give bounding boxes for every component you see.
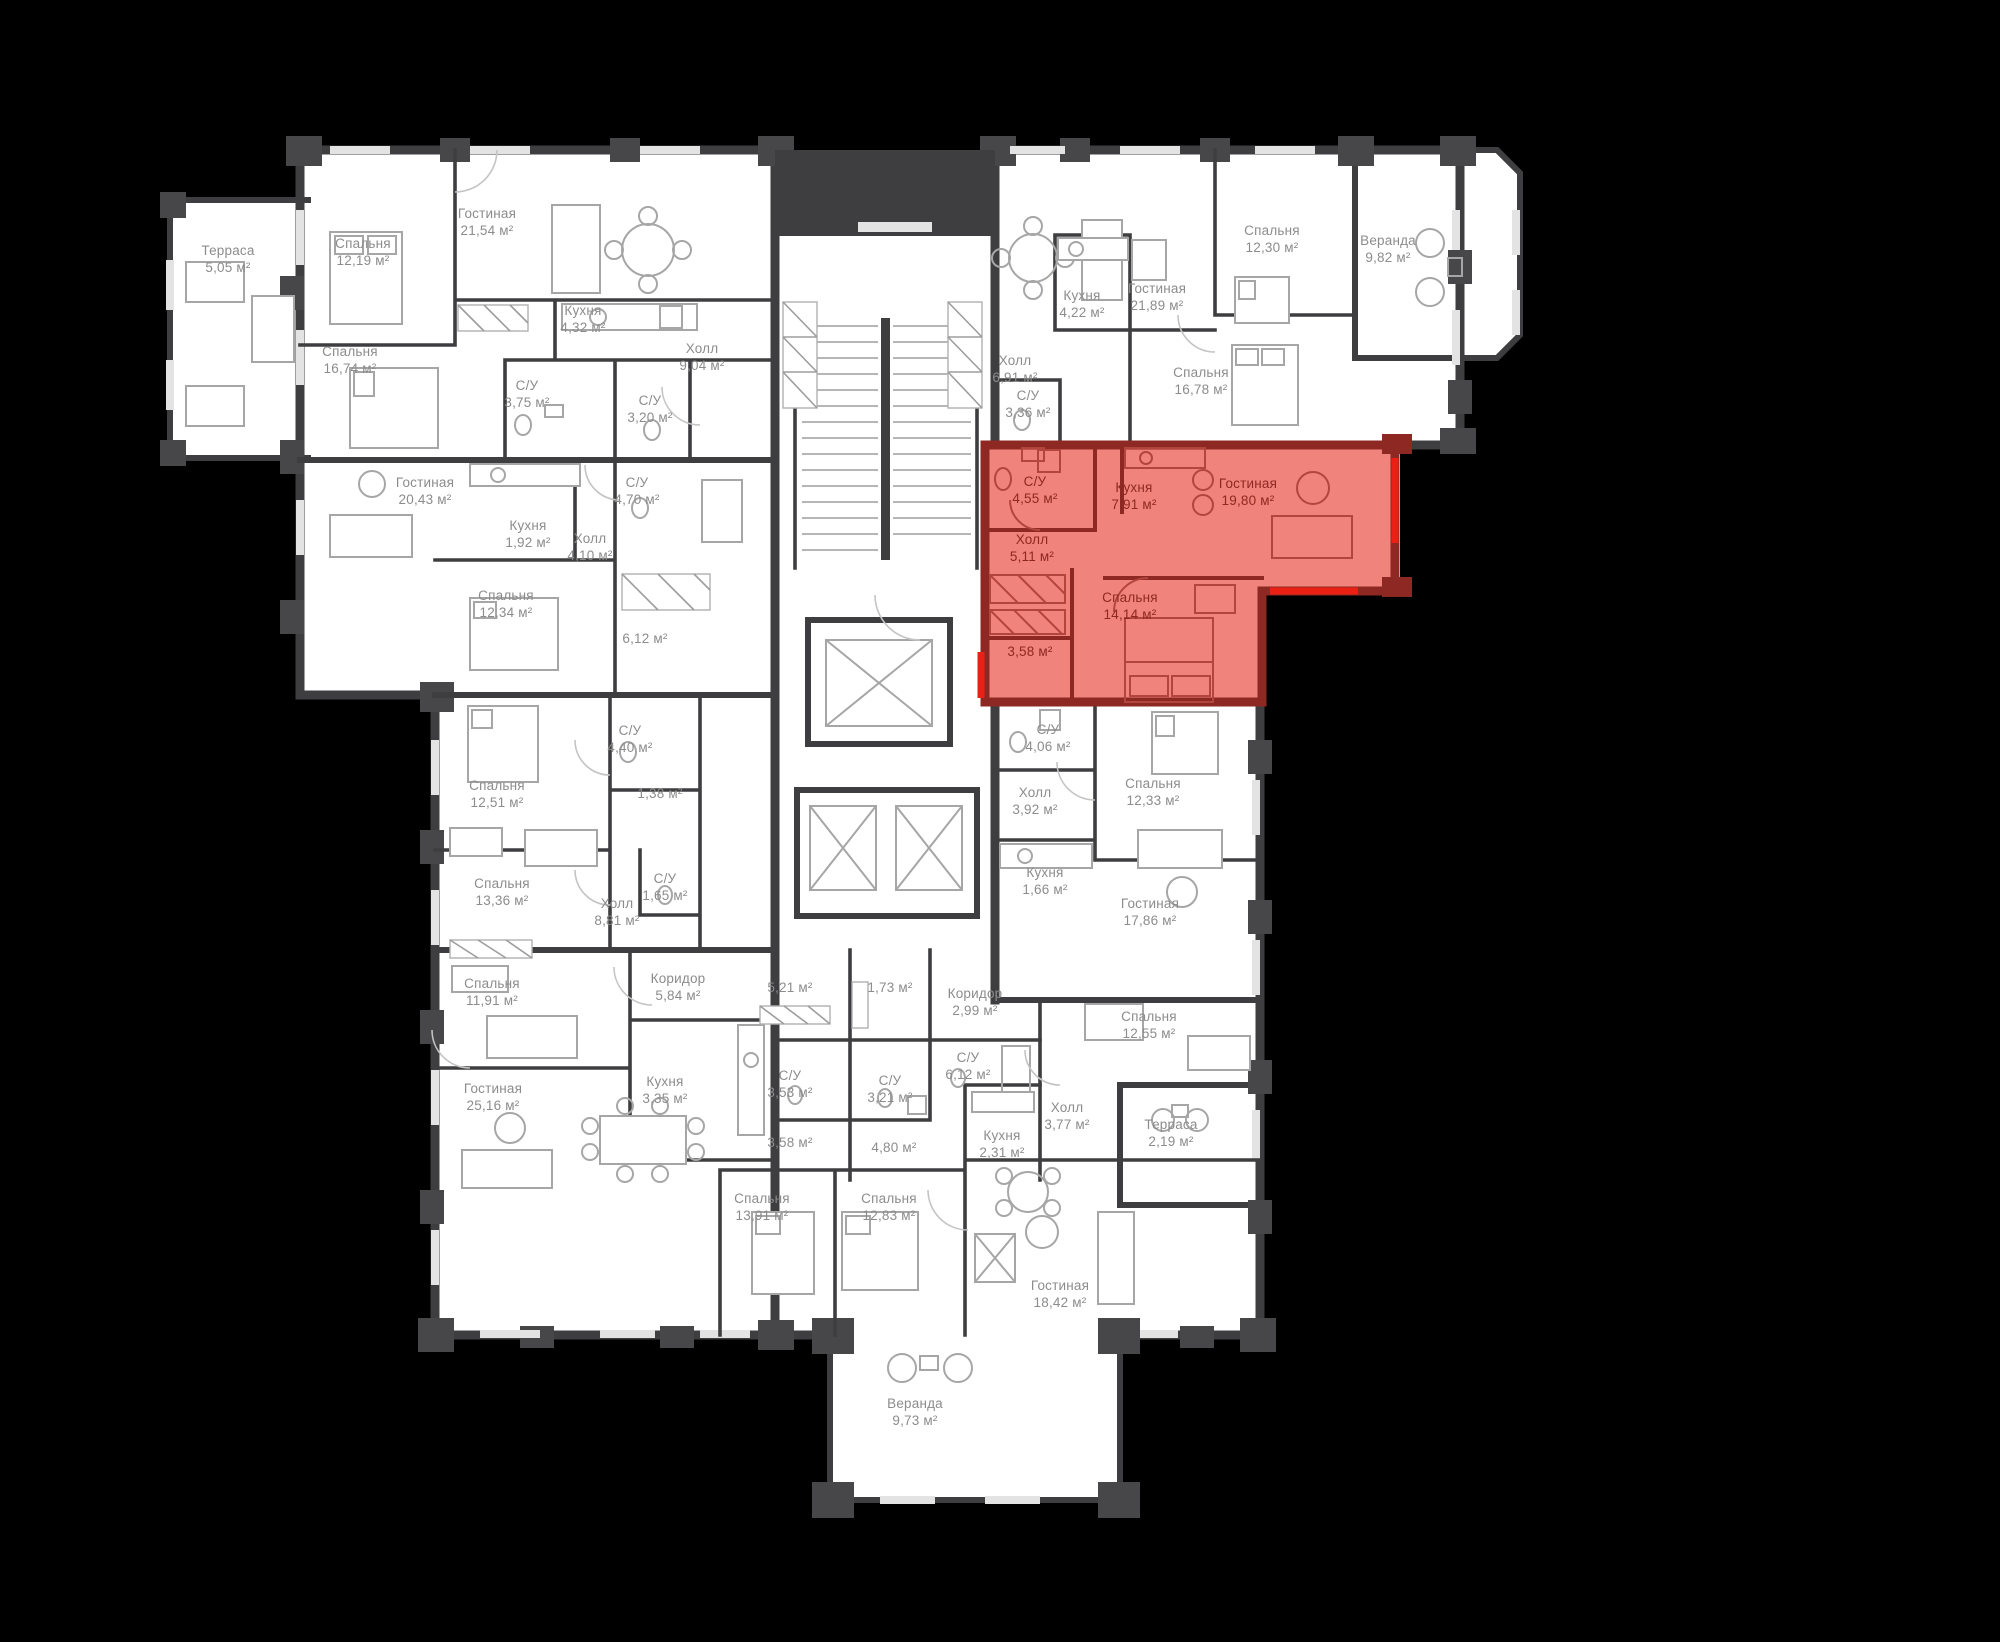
room-label: 1,73 м² xyxy=(867,980,913,995)
room-label: 1,38 м² xyxy=(637,786,683,801)
room-label: 6,12 м² xyxy=(622,631,668,646)
entrance-vestibule xyxy=(775,150,995,236)
floor-plan-svg: Терраса5,05 м²Спальня12,19 м²Гостиная21,… xyxy=(0,0,2000,1642)
room-label: 5,21 м² xyxy=(767,980,813,995)
floor-plan-canvas: Терраса5,05 м²Спальня12,19 м²Гостиная21,… xyxy=(0,0,2000,1642)
room-label: 4,80 м² xyxy=(871,1140,917,1155)
room-label: 3,58 м² xyxy=(1007,644,1053,659)
room-label: 3,58 м² xyxy=(767,1135,813,1150)
